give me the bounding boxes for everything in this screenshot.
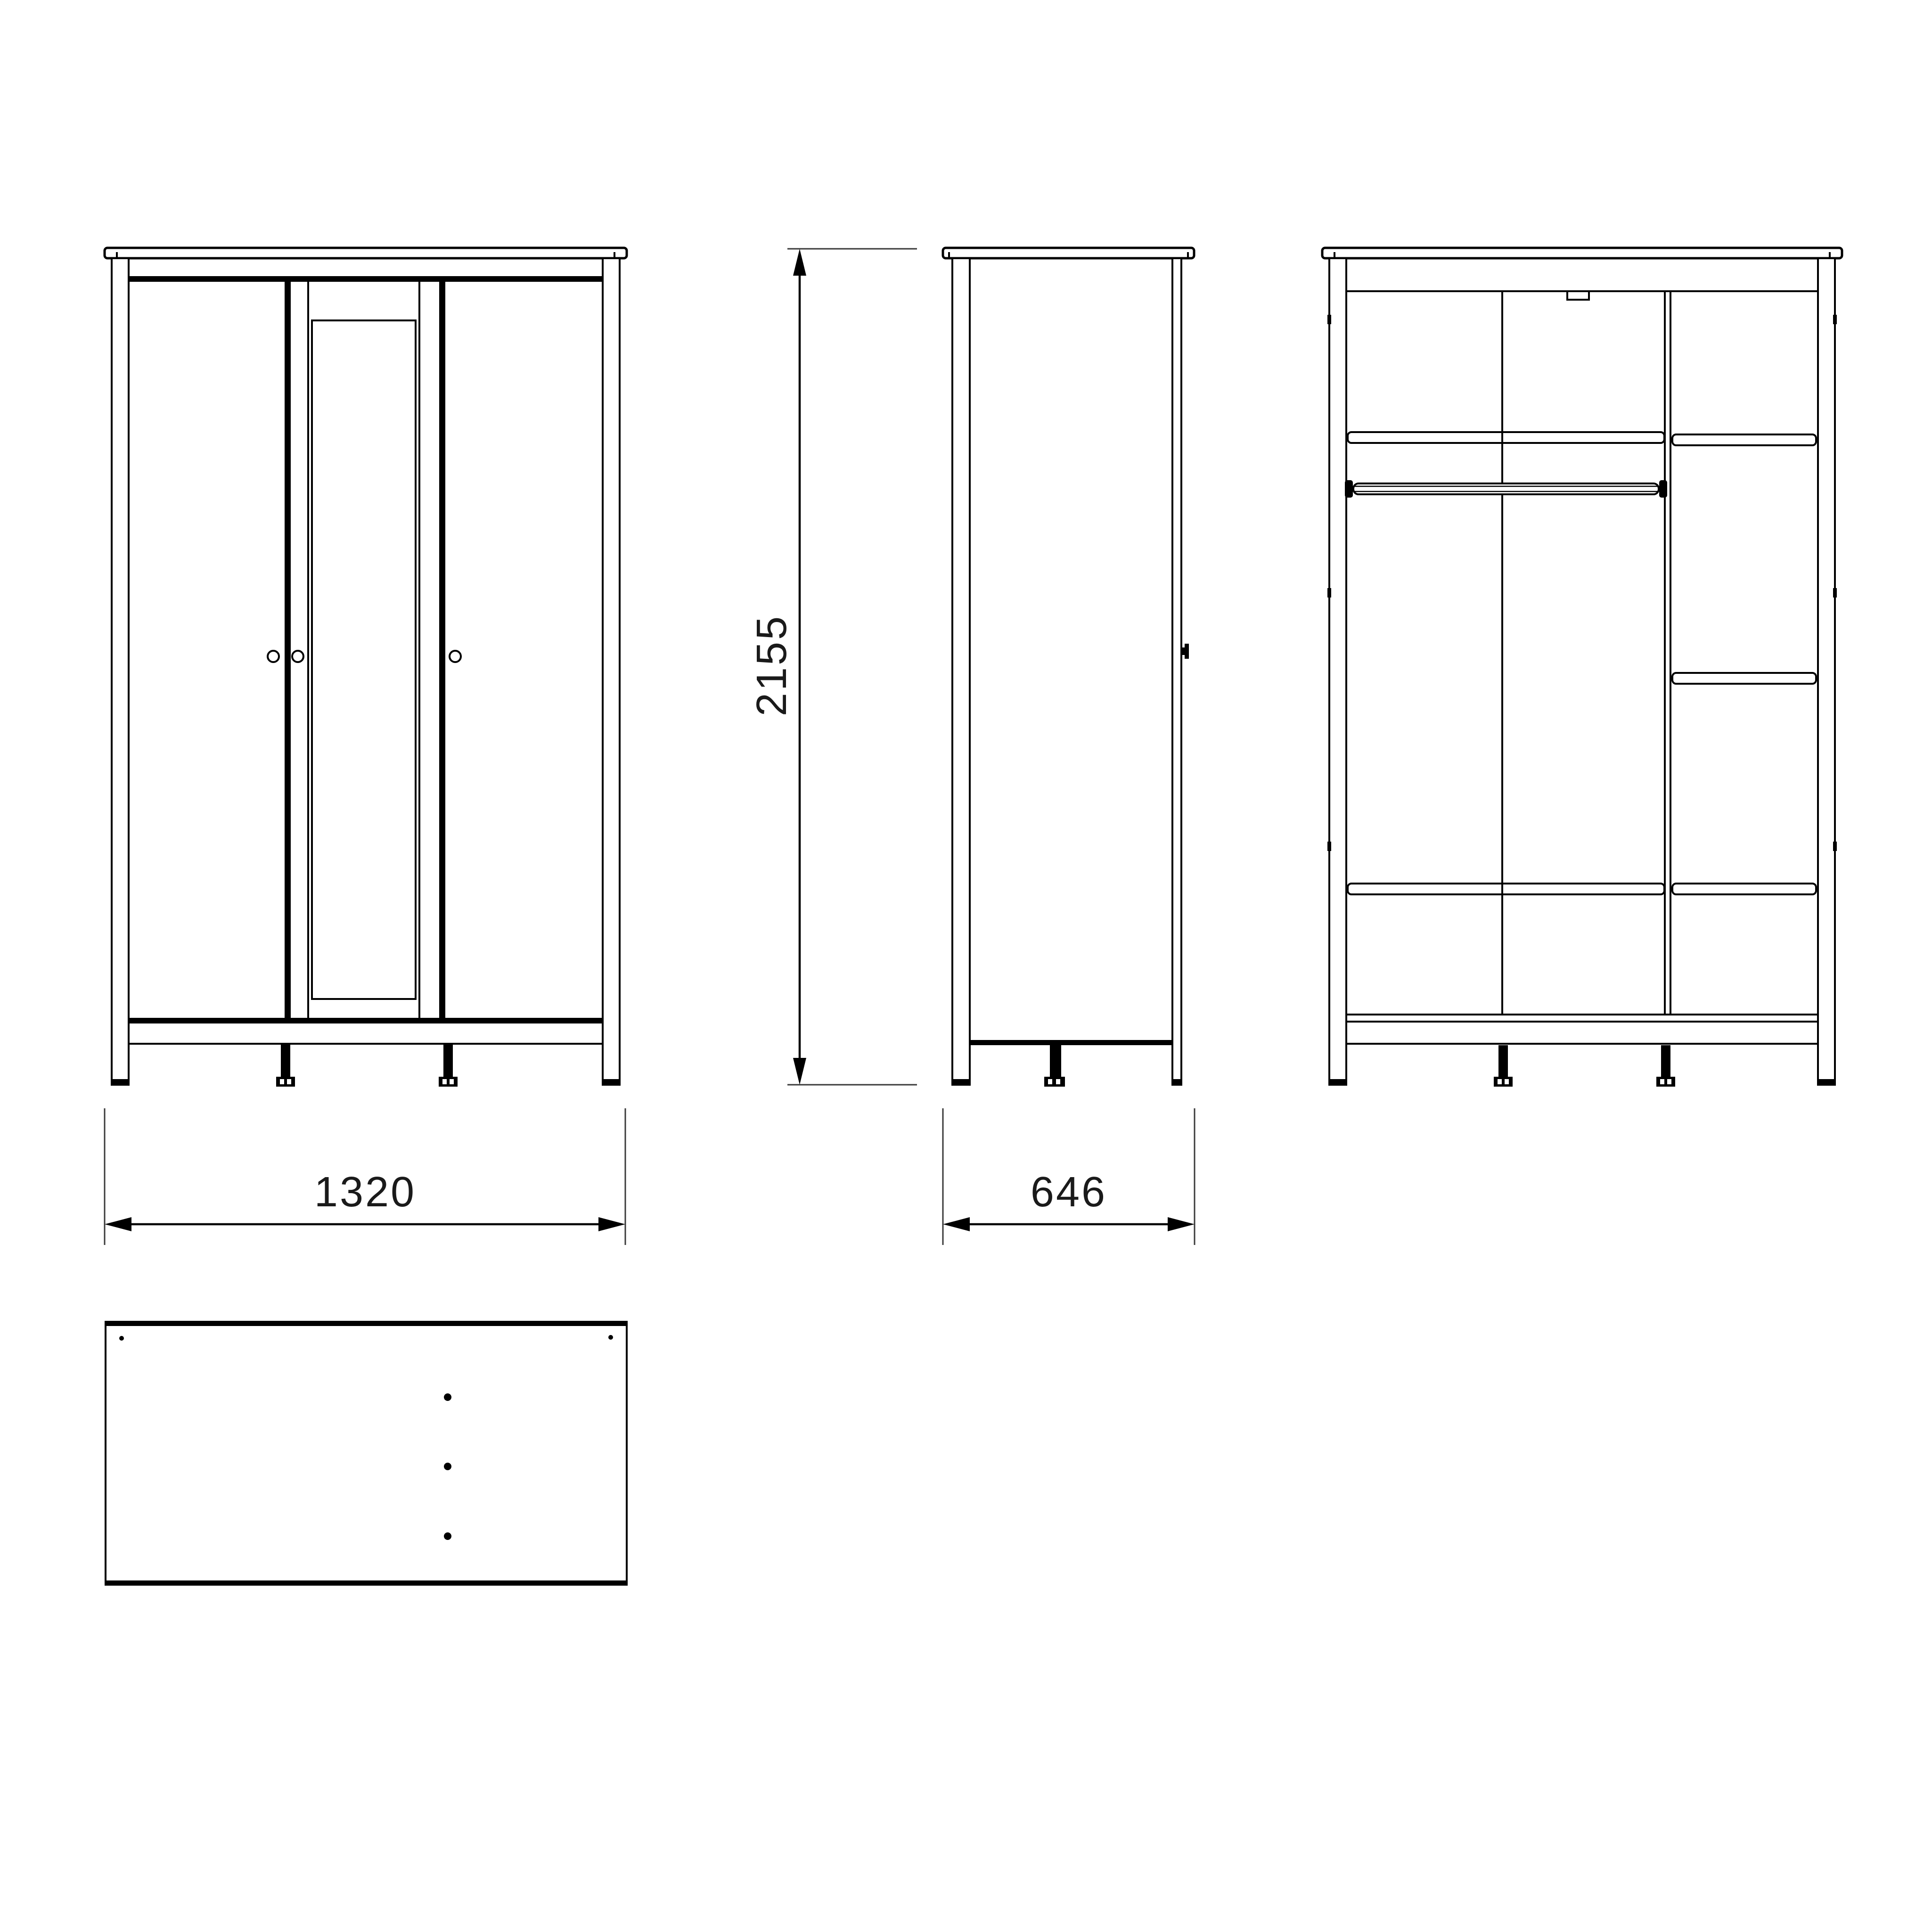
dimension-height: 2155 — [748, 249, 917, 1085]
dowel-hole — [444, 1463, 451, 1470]
mirror-inset-panel — [312, 320, 416, 999]
arrow-down-icon — [793, 1058, 806, 1085]
hanging-rail — [1353, 483, 1659, 494]
door1-right-edge — [285, 282, 291, 1018]
interior-top-board — [1322, 248, 1842, 258]
foot-pad-notch — [280, 1079, 284, 1084]
foot-adjuster-pad — [439, 1077, 458, 1087]
foot-adjuster-pad — [1656, 1077, 1675, 1087]
screw-hole — [119, 1336, 124, 1341]
wardrobe-technical-drawing: 2155 1320 646 — [0, 0, 1932, 1932]
door-bottom-rail — [129, 1018, 603, 1023]
interior-view — [1322, 248, 1842, 1087]
side-front-foot-pad — [1171, 1079, 1182, 1085]
side-center-foot — [1050, 1045, 1061, 1077]
left-post-foot-pad — [113, 1079, 128, 1085]
right-post-foot-pad — [1819, 1079, 1834, 1085]
height-dimension-label: 2155 — [748, 614, 795, 716]
screw-hole — [608, 1335, 613, 1340]
panel-front-edge — [106, 1322, 627, 1326]
dimension-depth: 646 — [943, 1108, 1195, 1245]
bottom-shelf-left — [1348, 884, 1664, 894]
foot-adjuster-pad — [1044, 1077, 1065, 1087]
right-post-foot-pad — [604, 1079, 619, 1085]
foot-pad-notch — [1660, 1079, 1664, 1084]
door1-knob — [268, 651, 279, 662]
panel-back-edge — [106, 1580, 627, 1585]
knob-side-profile — [1181, 647, 1185, 655]
front-center-foot-left — [281, 1044, 290, 1077]
front-left-post — [112, 258, 129, 1085]
arrow-right-icon — [598, 1217, 625, 1231]
arrow-right-icon — [1168, 1217, 1195, 1231]
depth-dimension-label: 646 — [1031, 1169, 1107, 1216]
arrow-left-icon — [943, 1217, 970, 1231]
top-shelf — [1348, 432, 1664, 443]
width-dimension-label: 1320 — [314, 1169, 416, 1216]
foot-pad-notch — [287, 1079, 291, 1084]
dimension-width: 1320 — [105, 1108, 625, 1245]
side-back-foot-pad — [951, 1079, 971, 1085]
interior-right-post — [1818, 258, 1835, 1085]
dowel-hole — [444, 1393, 451, 1401]
foot-pad-notch — [1048, 1079, 1052, 1084]
interior-center-foot-right — [1661, 1045, 1670, 1077]
foot-pad-notch — [442, 1079, 447, 1084]
dowel-hole — [444, 1532, 451, 1540]
interior-center-foot-left — [1498, 1045, 1508, 1077]
side-bottom-rail — [970, 1040, 1172, 1045]
side-column-shelf-2 — [1672, 673, 1816, 684]
front-center-foot-right — [443, 1044, 453, 1077]
rail-mount-right — [1659, 480, 1667, 498]
side-back-post — [952, 258, 970, 1085]
front-top-board — [105, 248, 627, 258]
foot-pad-notch — [1056, 1079, 1060, 1084]
top-panel-view — [106, 1322, 627, 1585]
mirror-door-knob — [292, 651, 303, 662]
front-view — [105, 248, 627, 1087]
arrow-up-icon — [793, 249, 806, 276]
rail-mount-left — [1345, 480, 1353, 498]
foot-pad-notch — [1498, 1079, 1502, 1084]
bottom-shelf-right — [1672, 884, 1816, 894]
bottom-board — [1346, 1015, 1818, 1022]
foot-adjuster-pad — [276, 1077, 295, 1087]
top-panel — [106, 1322, 627, 1585]
knob-side-profile — [1185, 644, 1189, 659]
side-top-board — [943, 248, 1194, 258]
foot-pad-notch — [450, 1079, 454, 1084]
side-view — [943, 248, 1194, 1087]
hinge-mark — [1833, 588, 1837, 598]
foot-pad-notch — [1505, 1079, 1509, 1084]
door3-left-edge — [439, 282, 445, 1018]
arrow-left-icon — [105, 1217, 131, 1231]
front-right-post — [603, 258, 620, 1085]
door-top-rail — [129, 276, 603, 282]
foot-pad-notch — [1667, 1079, 1671, 1084]
hinge-mark — [1327, 315, 1331, 324]
door3-knob — [450, 651, 461, 662]
hinge-mark — [1327, 842, 1331, 851]
hinge-mark — [1327, 588, 1331, 598]
side-front-post — [1172, 258, 1181, 1085]
side-column-shelf-1 — [1672, 434, 1816, 445]
hinge-mark — [1833, 315, 1837, 324]
assembly-notch — [1567, 291, 1589, 300]
interior-left-post — [1329, 258, 1346, 1085]
foot-adjuster-pad — [1494, 1077, 1513, 1087]
left-post-foot-pad — [1330, 1079, 1345, 1085]
hinge-mark — [1833, 842, 1837, 851]
